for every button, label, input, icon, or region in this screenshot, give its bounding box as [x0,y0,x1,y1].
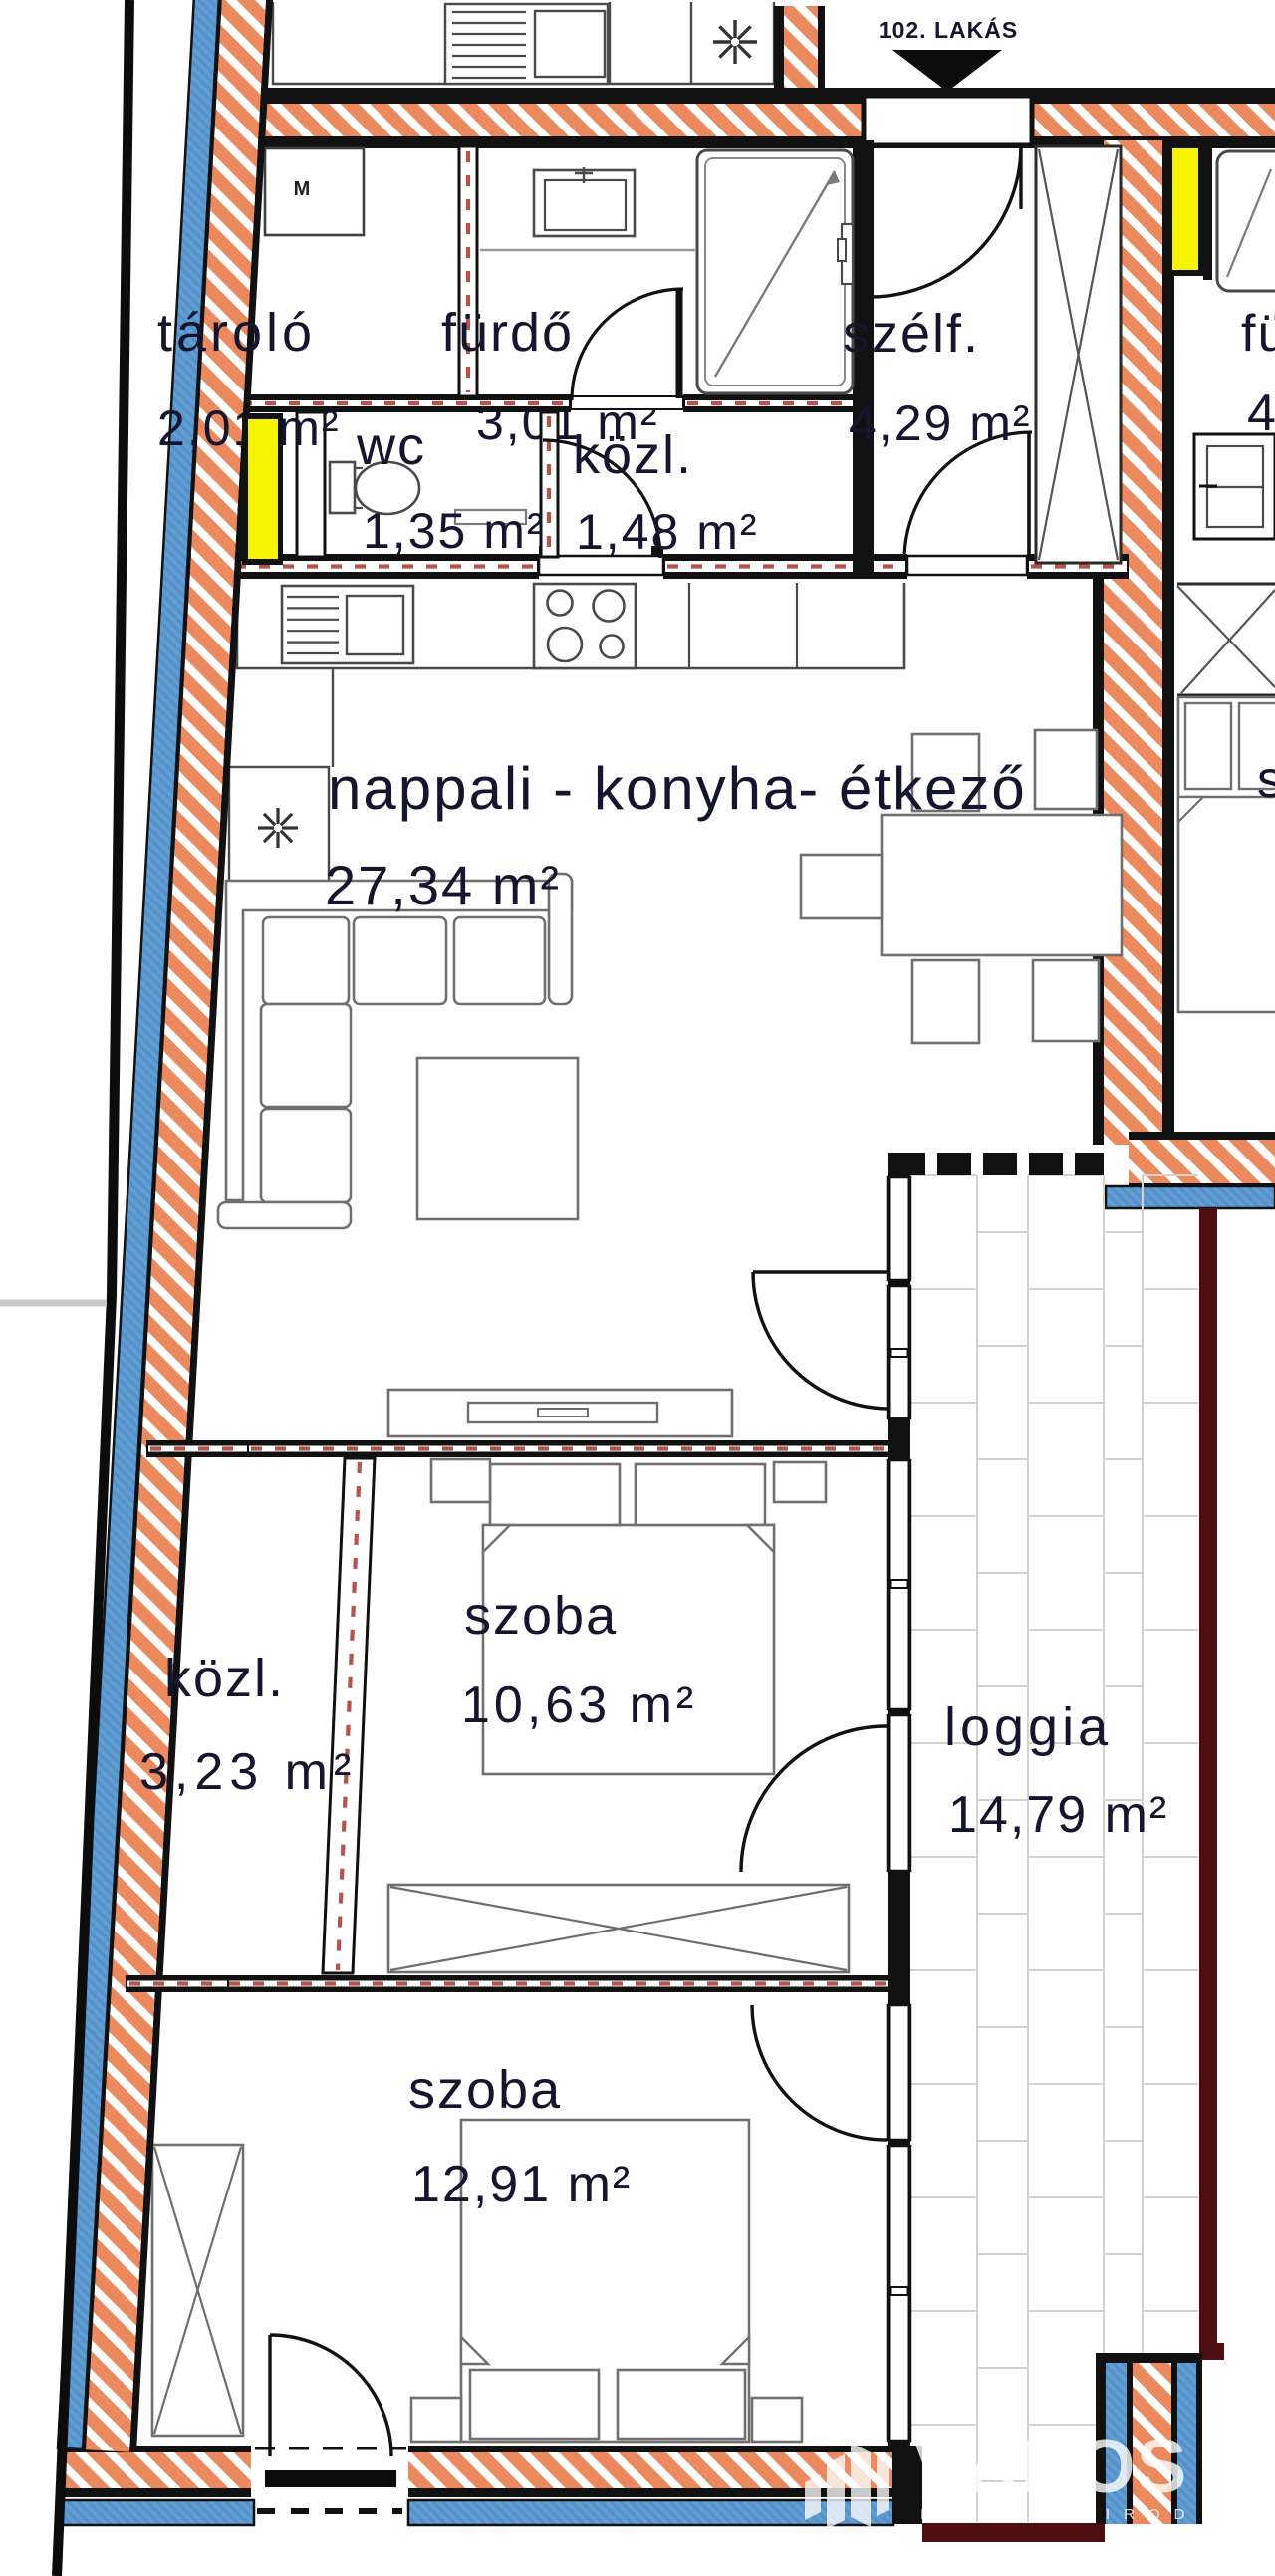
svg-text:INGATLANIROD: INGATLANIROD [920,2506,1198,2523]
svg-text:fü: fü [1241,305,1275,363]
svg-text:VÁROS: VÁROS [913,2425,1187,2509]
svg-text:102. LAKÁS: 102. LAKÁS [879,16,1018,43]
svg-text:fürdő: fürdő [441,303,574,363]
svg-text:loggia: loggia [944,1697,1112,1757]
svg-text:szélf.: szélf. [843,304,980,364]
svg-text:sz: sz [1257,751,1275,809]
svg-text:27,34 m²: 27,34 m² [325,854,561,916]
svg-text:közl.: közl. [573,425,693,485]
svg-text:12,91 m²: 12,91 m² [411,2156,632,2213]
svg-text:nappali - konyha- étkező: nappali - konyha- étkező [328,755,1027,822]
svg-text:1,48 m²: 1,48 m² [576,504,759,560]
svg-text:szoba: szoba [408,2060,562,2120]
svg-text:10,63 m²: 10,63 m² [461,1676,697,1734]
svg-text:szoba: szoba [464,1586,618,1646]
svg-text:tároló: tároló [157,303,316,363]
svg-text:M: M [294,178,311,200]
svg-text:közl.: közl. [164,1649,285,1708]
svg-text:4,29 m²: 4,29 m² [849,395,1032,451]
svg-text:3,23 m²: 3,23 m² [139,1743,357,1801]
svg-text:14,79 m²: 14,79 m² [948,1786,1168,1844]
svg-text:1,35 m²: 1,35 m² [363,503,546,559]
svg-text:wc: wc [356,416,426,476]
